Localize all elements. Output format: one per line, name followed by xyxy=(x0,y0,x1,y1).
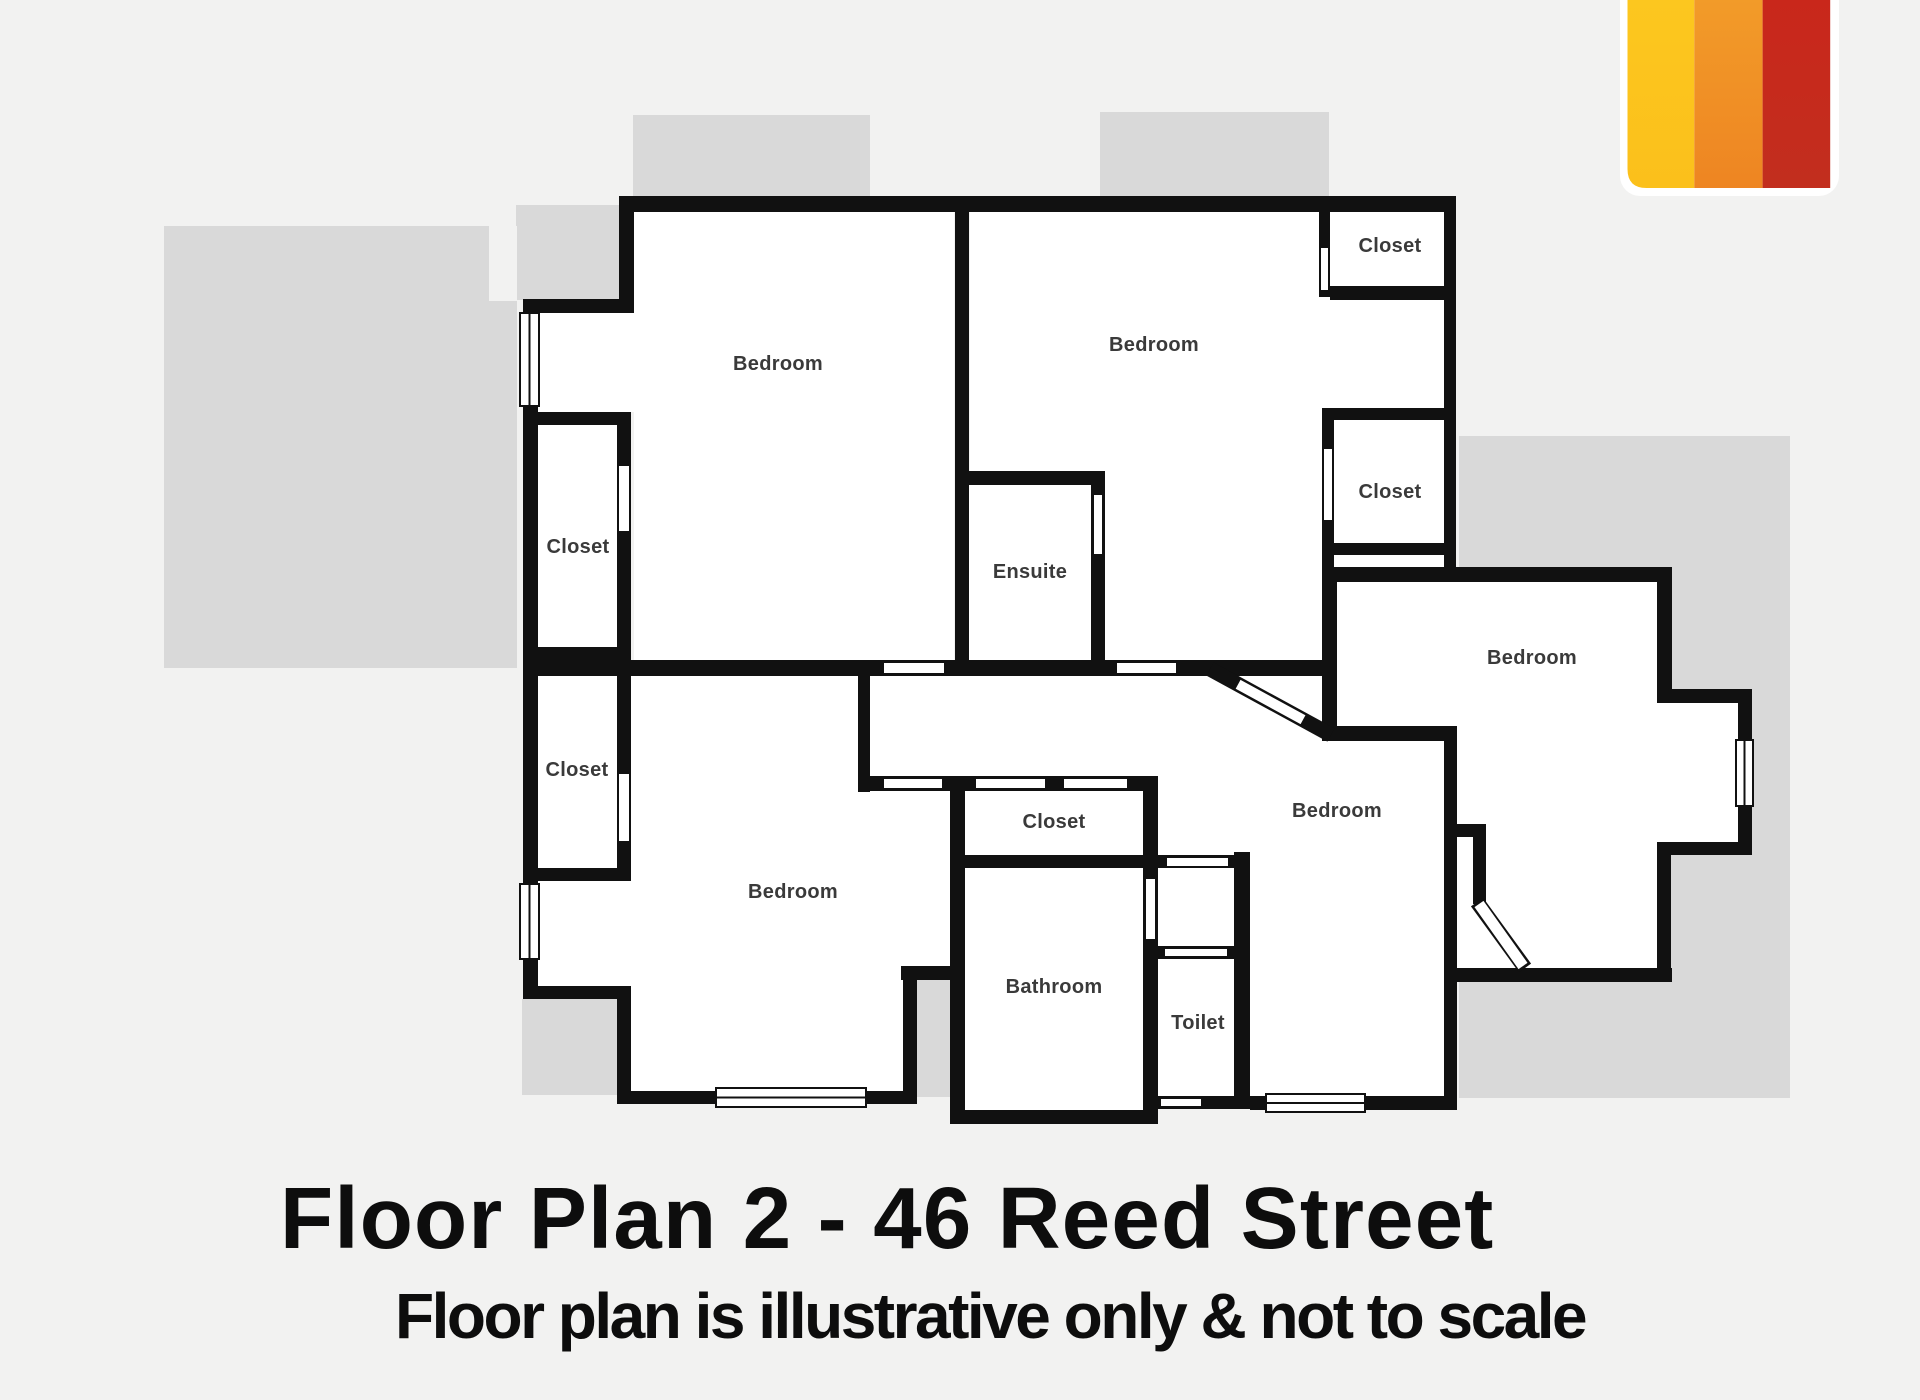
svg-text:Closet: Closet xyxy=(1359,235,1422,257)
svg-text:Bedroom: Bedroom xyxy=(1292,800,1382,822)
svg-text:Bedroom: Bedroom xyxy=(1109,334,1199,356)
svg-text:Ensuite: Ensuite xyxy=(993,561,1067,583)
svg-text:Floor plan is illustrative onl: Floor plan is illustrative only & not to… xyxy=(395,1280,1586,1352)
svg-text:Closet: Closet xyxy=(547,536,610,558)
svg-text:Toilet: Toilet xyxy=(1171,1012,1225,1034)
svg-text:Bathroom: Bathroom xyxy=(1006,976,1103,998)
svg-text:Bedroom: Bedroom xyxy=(733,353,823,375)
svg-text:Closet: Closet xyxy=(1023,811,1086,833)
svg-text:Bedroom: Bedroom xyxy=(1487,647,1577,669)
svg-text:Bedroom: Bedroom xyxy=(748,881,838,903)
svg-text:Floor Plan 2 - 46 Reed Street: Floor Plan 2 - 46 Reed Street xyxy=(280,1170,1494,1267)
svg-text:Closet: Closet xyxy=(546,759,609,781)
svg-text:Closet: Closet xyxy=(1359,481,1422,503)
